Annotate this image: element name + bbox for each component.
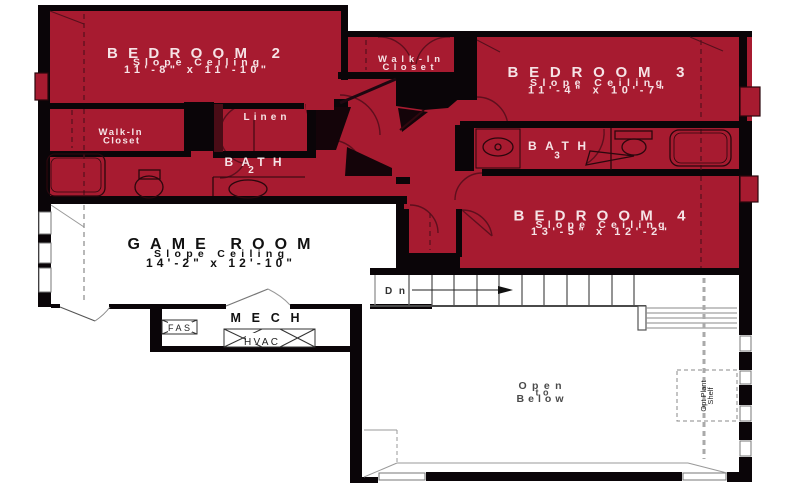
svg-text:3: 3 (554, 151, 560, 162)
svg-text:FAS: FAS (168, 323, 190, 333)
svg-text:Shelf: Shelf (706, 387, 715, 405)
svg-text:2: 2 (248, 165, 254, 176)
svg-text:Below: Below (517, 393, 565, 405)
svg-text:HVAC: HVAC (244, 337, 278, 348)
